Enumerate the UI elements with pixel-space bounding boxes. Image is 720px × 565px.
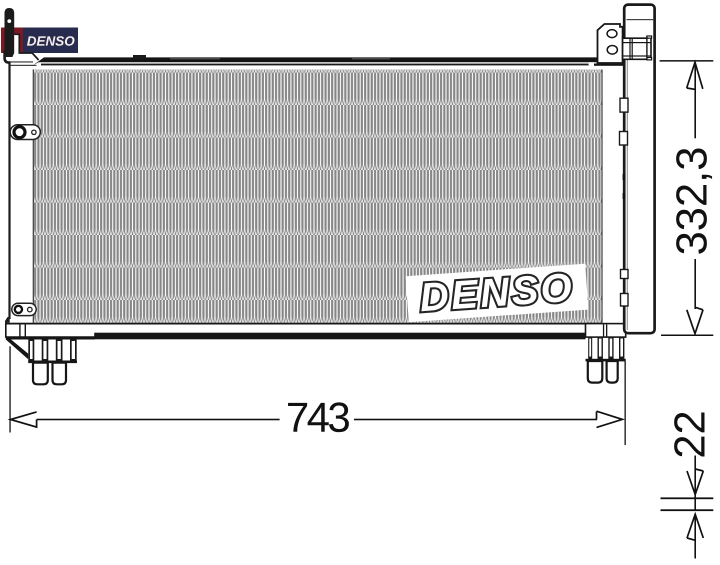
svg-text:DENSO: DENSO xyxy=(27,34,76,49)
svg-text:22: 22 xyxy=(666,410,714,458)
svg-text:743: 743 xyxy=(286,394,350,441)
svg-text:332,3: 332,3 xyxy=(668,147,716,256)
